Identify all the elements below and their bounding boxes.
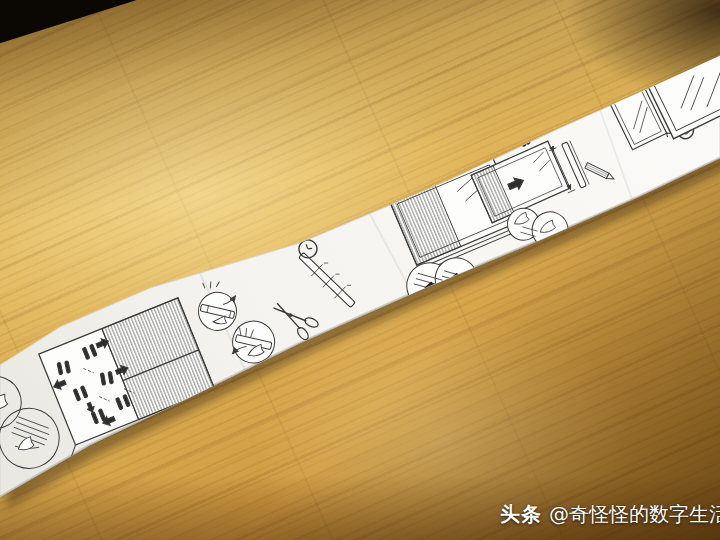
- photo-scene: 4 3: [0, 0, 720, 540]
- watermark-brand: 头条: [500, 502, 542, 526]
- step4-number: 4: [414, 172, 433, 187]
- instruction-strip: 4 3: [0, 0, 720, 540]
- watermark: 头条@奇怪怪的数字生活: [500, 501, 720, 528]
- watermark-handle: @奇怪怪的数字生活: [549, 502, 720, 526]
